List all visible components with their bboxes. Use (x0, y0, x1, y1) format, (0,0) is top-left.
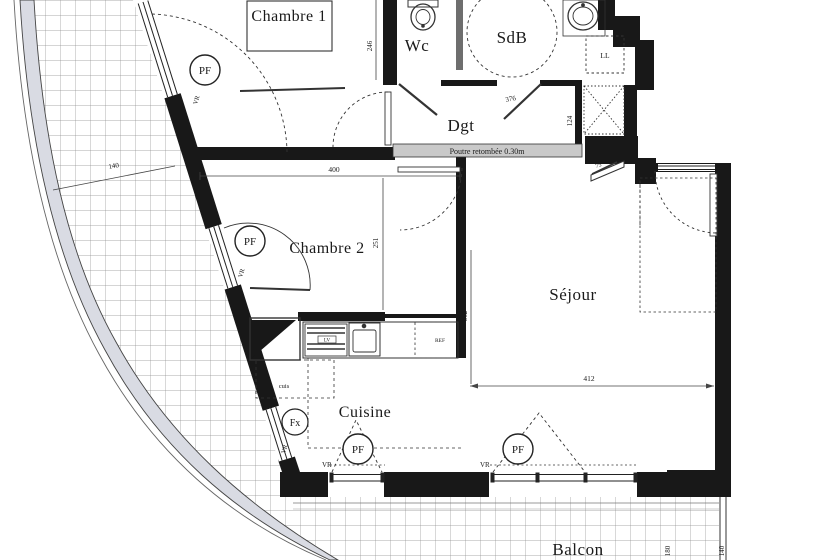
floor-plan: PF PF Fx PF PF Chambre 1 Wc SdB Dgt Cham… (0, 0, 840, 560)
room-label-sdb: SdB (497, 28, 528, 47)
cuisine-zone-label: cuis (279, 383, 290, 390)
beam-note: Poutre retombée 0.30m (450, 147, 526, 156)
dishwasher-label: LV (324, 339, 331, 344)
pf-symbol-chambre1: PF (190, 55, 220, 85)
washer-label: LL (600, 51, 610, 60)
room-label-dgt: Dgt (448, 116, 475, 135)
pf-symbol-chambre2: PF (235, 226, 265, 256)
room-label-cuisine: Cuisine (339, 404, 391, 421)
pf-label: PF (352, 444, 364, 456)
vr-label: VR (480, 461, 490, 469)
floor-plan-drawing: PF PF Fx PF PF Chambre 1 Wc SdB Dgt Cham… (0, 0, 840, 560)
dim-412: 412 (583, 374, 595, 383)
pf-symbol-cuisine: PF (343, 434, 373, 464)
pf-label: PF (199, 65, 211, 77)
door-leaf-chambre1 (385, 92, 391, 145)
dim-251: 251 (372, 237, 380, 248)
dim-124: 124 (566, 115, 574, 126)
vr-label: VR (322, 461, 332, 469)
room-label-sejour: Séjour (549, 285, 596, 304)
dim-362: 362 (461, 310, 469, 321)
pf-label: PF (244, 236, 256, 248)
dim-246: 246 (366, 40, 374, 51)
window-sejour-top (658, 164, 715, 171)
room-label-wc: Wc (405, 36, 430, 55)
fx-label: Fx (290, 418, 301, 429)
room-label-balcon: Balcon (552, 540, 603, 559)
fridge-label: REF (435, 338, 445, 344)
door-leaf-chambre2 (398, 167, 460, 172)
dim-180: 180 (664, 545, 672, 556)
room-label-chambre2: Chambre 2 (289, 240, 364, 257)
dim-400: 400 (328, 165, 340, 174)
fx-symbol-cuisine: Fx (282, 409, 308, 435)
room-label-chambre1: Chambre 1 (251, 8, 326, 25)
pf-symbol-sejour: PF (503, 434, 533, 464)
pf-label: PF (512, 444, 524, 456)
dim-140b: 140 (718, 545, 726, 556)
